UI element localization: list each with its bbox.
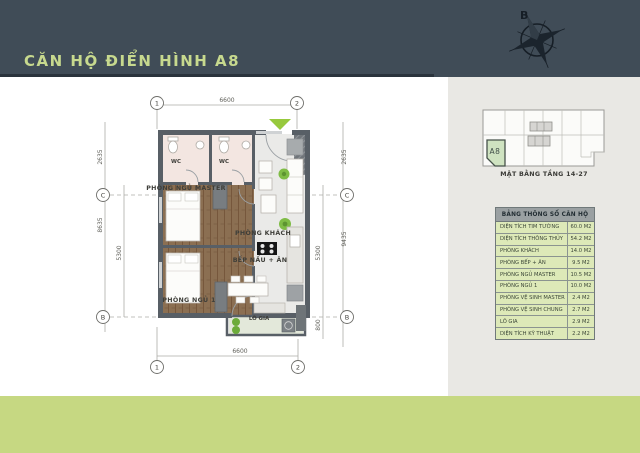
- header-bar: CĂN HỘ ĐIỂN HÌNH A8 B: [0, 0, 640, 77]
- dimension-left-top: 2635: [97, 149, 104, 164]
- row-value: 2.2 M2: [567, 328, 594, 339]
- row-label: PHÒNG KHÁCH: [496, 246, 567, 257]
- compass-north-label: B: [520, 9, 528, 22]
- row-value: 54.2 M2: [567, 234, 594, 245]
- row-value: 14.0 M2: [567, 246, 594, 257]
- coffee-table: [261, 195, 276, 213]
- cooktop: [257, 242, 277, 255]
- bedroom1-wardrobe: [215, 282, 227, 312]
- row-value: 9.5 M2: [567, 257, 594, 268]
- fridge: [287, 285, 303, 301]
- plant: [232, 326, 240, 334]
- table-row: PHÒNG NGỦ MASTER 10.5 M2: [496, 269, 594, 281]
- row-label: DIỆN TÍCH TIM TƯỜNG: [496, 222, 567, 233]
- page-title: CĂN HỘ ĐIỂN HÌNH A8: [24, 52, 240, 70]
- row-value: 10.5 M2: [567, 269, 594, 280]
- plant: [232, 318, 240, 326]
- key-plan-caption: MẶT BẰNG TẦNG 14-27: [448, 171, 640, 178]
- sink: [290, 235, 300, 247]
- brochure-page: CĂN HỘ ĐIỂN HÌNH A8 B: [0, 0, 640, 453]
- table-row: PHÒNG VỆ SINH MASTER 2.4 M2: [496, 293, 594, 305]
- grid-axis-c-left: C: [101, 192, 106, 200]
- table-row: PHÒNG VỆ SINH CHUNG 2.7 M2: [496, 305, 594, 317]
- dimension-left-inner: 5300: [116, 245, 123, 260]
- row-label: DIỆN TÍCH KỸ THUẬT: [496, 328, 567, 339]
- grid-axis-b-left: B: [101, 314, 105, 322]
- room-label-living: PHÒNG KHÁCH: [235, 228, 291, 237]
- washing-machine: [282, 319, 295, 332]
- dimension-right-top: 2635: [341, 149, 348, 164]
- dining-table: [228, 283, 268, 296]
- table-row: PHÒNG BẾP + ĂN 9.5 M2: [496, 257, 594, 269]
- floor-plan-panel: 6600 6600 2635 8635 5300 2635 9435 5300 …: [0, 77, 448, 396]
- ac-unit: [296, 305, 306, 331]
- row-value: 60.0 M2: [567, 222, 594, 233]
- compass-icon: B: [500, 3, 576, 77]
- grid-axis-1-bottom: 1: [155, 364, 159, 372]
- sofa: [287, 159, 303, 213]
- info-panel: A8 MẶT BẰNG TẦNG 14-27 BẢNG THÔNG SỐ CĂN…: [448, 77, 640, 396]
- dimension-bottom: 6600: [232, 348, 247, 355]
- row-value: 2.7 M2: [567, 305, 594, 316]
- armchair: [259, 178, 272, 190]
- floor-plan: 6600 6600 2635 8635 5300 2635 9435 5300 …: [0, 77, 448, 396]
- entry-marker-icon: [269, 119, 291, 130]
- dimension-top: 6600: [219, 97, 234, 104]
- row-value: 2.4 M2: [567, 293, 594, 304]
- row-label: DIỆN TÍCH THÔNG THỦY: [496, 234, 567, 245]
- row-label: PHÒNG VỆ SINH MASTER: [496, 293, 567, 304]
- row-label: PHÒNG VỆ SINH CHUNG: [496, 305, 567, 316]
- grid-axis-b-right: B: [345, 314, 349, 322]
- compass-star: [500, 3, 576, 77]
- dimension-right-outer: 9435: [341, 231, 348, 246]
- table-row: DIỆN TÍCH KỸ THUẬT 2.2 M2: [496, 328, 594, 339]
- table-row: DIỆN TÍCH TIM TƯỜNG 60.0 M2: [496, 222, 594, 234]
- armchair: [259, 161, 272, 173]
- table-row: PHÒNG NGỦ 1 10.0 M2: [496, 281, 594, 293]
- spec-table-title: BẢNG THÔNG SỐ CĂN HỘ: [496, 208, 594, 222]
- grid-axis-2-top: 2: [295, 100, 299, 108]
- room-label-wc1: WC: [171, 159, 181, 165]
- row-label: PHÒNG NGỦ 1: [496, 281, 567, 292]
- tv-cabinet: [287, 139, 303, 155]
- row-value: 10.0 M2: [567, 281, 594, 292]
- spec-table: BẢNG THÔNG SỐ CĂN HỘ DIỆN TÍCH TIM TƯỜNG…: [495, 207, 595, 340]
- dimension-right-balcony: 800: [315, 319, 322, 331]
- table-row: LÔ GIA 2.9 M2: [496, 316, 594, 328]
- row-label: LÔ GIA: [496, 316, 567, 327]
- grid-axis-1-top: 1: [155, 100, 159, 108]
- footer-band: [0, 396, 640, 453]
- room-label-wc2: WC: [219, 159, 229, 165]
- row-label: PHÒNG BẾP + ĂN: [496, 257, 567, 268]
- dimension-left-outer: 8635: [97, 217, 104, 232]
- key-plan-unit-label: A8: [490, 147, 501, 156]
- grid-axis-c-right: C: [345, 192, 350, 200]
- table-row: DIỆN TÍCH THÔNG THỦY 54.2 M2: [496, 234, 594, 246]
- dimension-right-inner: 5300: [315, 245, 322, 260]
- row-value: 2.9 M2: [567, 316, 594, 327]
- room-label-balcony: LÔ GIA: [249, 315, 270, 322]
- grid-axis-2-bottom: 2: [296, 364, 300, 372]
- table-row: PHÒNG KHÁCH 14.0 M2: [496, 246, 594, 258]
- row-label: PHÒNG NGỦ MASTER: [496, 269, 567, 280]
- lower-cabinet: [254, 303, 285, 313]
